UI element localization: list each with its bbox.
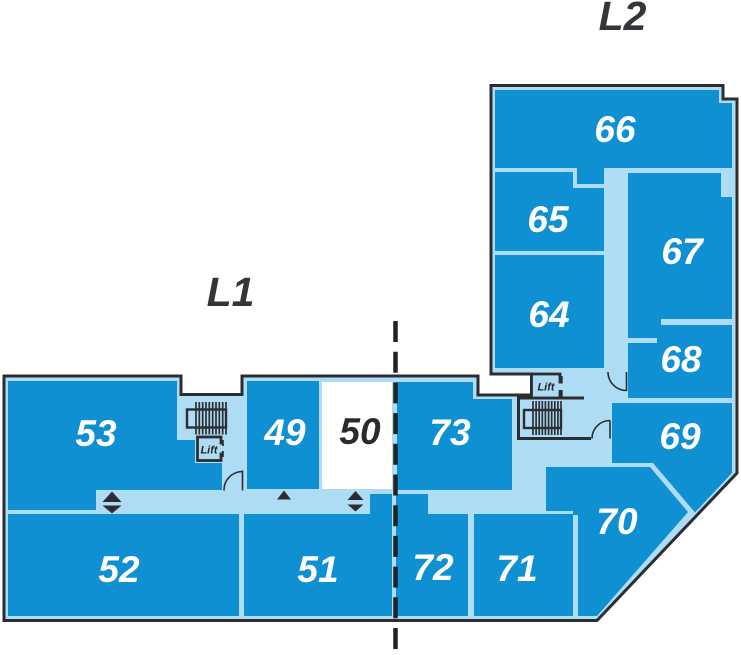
svg-text:64: 64 — [528, 294, 569, 335]
svg-text:51: 51 — [297, 549, 338, 590]
svg-text:Lift: Lift — [537, 382, 555, 394]
svg-text:67: 67 — [661, 231, 705, 272]
svg-text:52: 52 — [98, 549, 140, 590]
svg-text:50: 50 — [339, 411, 381, 452]
svg-text:L1: L1 — [207, 269, 255, 315]
svg-text:66: 66 — [594, 109, 636, 150]
svg-text:53: 53 — [75, 413, 117, 454]
svg-text:69: 69 — [659, 416, 701, 457]
svg-text:Lift: Lift — [200, 445, 218, 457]
svg-text:65: 65 — [527, 199, 570, 240]
svg-text:68: 68 — [660, 339, 702, 380]
svg-text:72: 72 — [412, 547, 454, 588]
svg-text:71: 71 — [496, 548, 537, 589]
svg-text:49: 49 — [263, 412, 306, 453]
svg-text:70: 70 — [596, 501, 638, 542]
svg-text:L2: L2 — [599, 0, 647, 39]
svg-text:73: 73 — [429, 412, 471, 453]
